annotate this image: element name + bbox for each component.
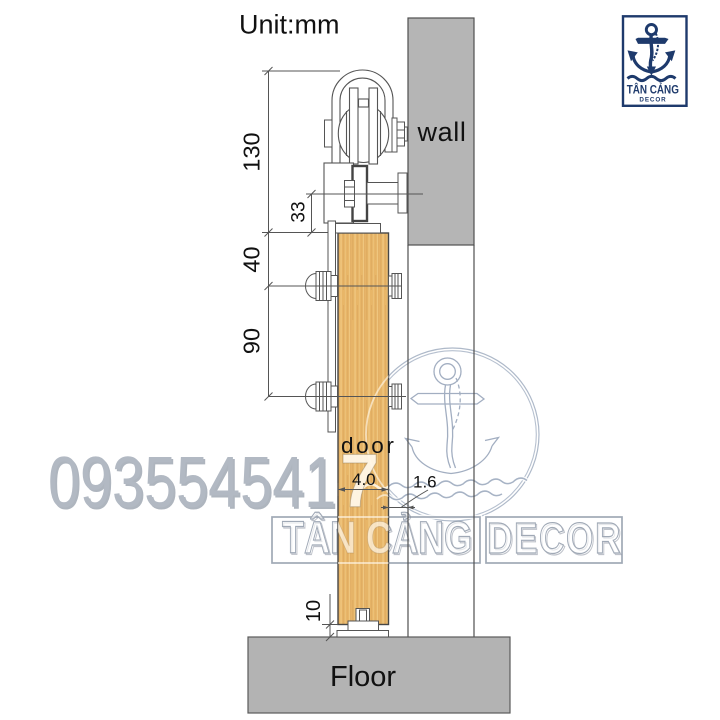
svg-text:DECOR: DECOR (639, 96, 666, 103)
svg-text:10: 10 (303, 600, 325, 622)
svg-text:90: 90 (239, 328, 265, 354)
svg-text:Unit:mm: Unit:mm (239, 10, 340, 40)
svg-text:Floor: Floor (330, 661, 396, 693)
svg-text:4.0: 4.0 (352, 470, 376, 489)
svg-text:33: 33 (289, 201, 310, 222)
svg-text:1.6: 1.6 (413, 473, 437, 492)
svg-text:door: door (341, 433, 396, 458)
svg-text:wall: wall (417, 117, 467, 147)
svg-text:130: 130 (239, 132, 265, 171)
svg-text:DECOR: DECOR (487, 514, 622, 563)
svg-text:093554541: 093554541 (48, 442, 336, 523)
svg-text:TÂN CẢNG: TÂN CẢNG (627, 83, 679, 97)
svg-text:40: 40 (239, 246, 265, 272)
